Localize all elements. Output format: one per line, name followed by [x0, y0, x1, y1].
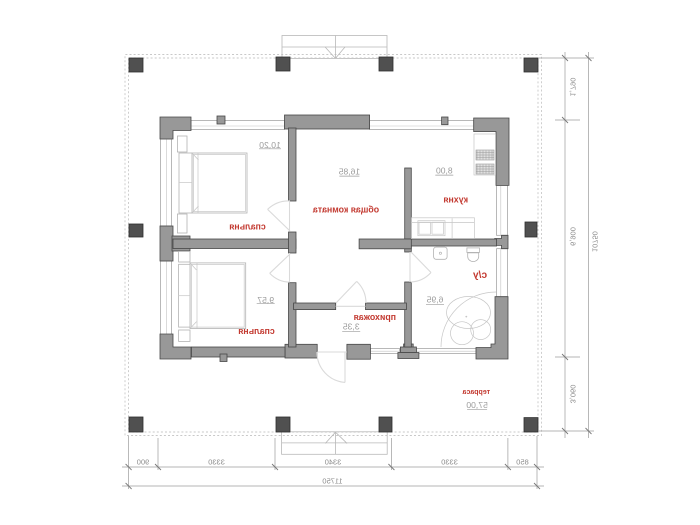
svg-text:1,790: 1,790: [568, 78, 577, 97]
svg-text:6,95: 6,95: [426, 295, 443, 305]
svg-text:3330: 3330: [208, 458, 225, 467]
svg-text:кухня: кухня: [443, 194, 468, 204]
svg-text:10,20: 10,20: [259, 140, 281, 150]
svg-text:общая комната: общая комната: [313, 204, 379, 214]
svg-text:спальня: спальня: [229, 221, 266, 231]
svg-text:850: 850: [516, 458, 529, 467]
svg-text:6,900: 6,900: [568, 227, 577, 246]
svg-text:3,060: 3,060: [568, 385, 577, 404]
svg-text:3,35: 3,35: [343, 322, 360, 332]
svg-text:10750: 10750: [590, 231, 599, 252]
svg-text:3340: 3340: [325, 458, 342, 467]
svg-text:спальня: спальня: [238, 326, 275, 336]
svg-text:3330: 3330: [441, 458, 458, 467]
svg-text:11750: 11750: [322, 477, 342, 486]
svg-text:57,00: 57,00: [466, 400, 488, 410]
svg-text:с/у: с/у: [473, 270, 487, 281]
svg-text:терраса: терраса: [462, 389, 490, 396]
svg-text:900: 900: [137, 458, 150, 467]
svg-text:прихожая: прихожая: [354, 312, 396, 322]
svg-text:8,00: 8,00: [436, 165, 453, 175]
svg-text:16,85: 16,85: [338, 166, 360, 176]
